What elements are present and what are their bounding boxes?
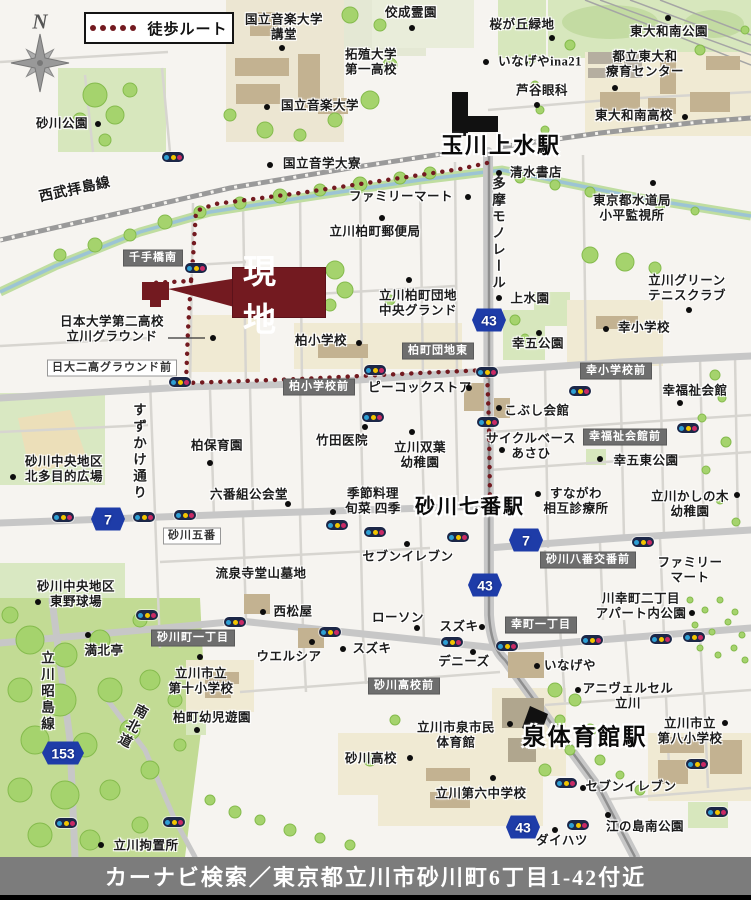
traffic-signal-icon <box>163 817 185 827</box>
poi-dot <box>552 827 558 833</box>
site-callout: 現地 <box>233 268 325 317</box>
traffic-signal-icon <box>136 610 158 620</box>
traffic-signal-icon <box>447 532 469 542</box>
place-label: 砂川高校 <box>345 752 397 767</box>
road-label-nanbokudo: 南北道 <box>112 700 149 751</box>
poi-dot <box>677 400 683 406</box>
legend: 徒歩ルート <box>84 12 234 44</box>
place-label: 立川グリーン テニスクラブ <box>648 273 726 303</box>
poi-dot <box>549 35 555 41</box>
poi-dot <box>207 460 213 466</box>
access-map-flyer: 砂川公園国立音楽大学 講堂佼成霊園拓殖大学 第一高校桜が丘緑地東大和南公園いなげ… <box>0 0 751 900</box>
site-label: 現地 <box>243 245 325 341</box>
place-label: 日本大学第二高校 立川グラウンド <box>60 314 164 344</box>
traffic-signal-icon <box>133 512 155 522</box>
poi-dot <box>496 170 502 176</box>
place-label: いなげやina21 <box>498 55 582 70</box>
place-label: 幸五東公園 <box>613 454 678 469</box>
place-label: アニヴェルセル 立川 <box>583 681 674 711</box>
poi-dot <box>98 842 104 848</box>
station-label-sunagawa-nanaban: 砂川七番駅 <box>415 496 525 520</box>
place-label: 東京都水道局 小平監視所 <box>593 193 671 223</box>
place-label: デニーズ <box>438 655 489 670</box>
place-label: 竹田医院 <box>316 434 368 449</box>
intersection-label: 砂川八番交番前 <box>540 552 636 569</box>
road-label-tama-monorail: 多摩モノレール <box>489 176 505 292</box>
intersection-label: 幸町一丁目 <box>505 617 577 634</box>
poi-dot <box>603 326 609 332</box>
traffic-signal-icon <box>683 632 705 642</box>
poi-dot <box>279 45 285 51</box>
labels-layer: 砂川公園国立音楽大学 講堂佼成霊園拓殖大学 第一高校桜が丘緑地東大和南公園いなげ… <box>0 0 751 857</box>
poi-dot <box>665 15 671 21</box>
place-label: 柏町幼児遊園 <box>173 711 251 726</box>
traffic-signal-icon <box>476 367 498 377</box>
traffic-signal-icon <box>567 820 589 830</box>
traffic-signal-icon <box>326 520 348 530</box>
station-label-izumi-taiikukan: 泉体育館駅 <box>523 723 648 750</box>
place-label: 川幸町二丁目 アパート内公園 <box>596 591 687 621</box>
intersection-label: 千手橋南 <box>123 250 183 267</box>
car-navi-caption-text: カーナビ検索／東京都立川市砂川町6丁目1-42付近 <box>105 860 646 892</box>
place-label: 桜が丘緑地 <box>489 18 554 33</box>
poi-dot <box>507 721 513 727</box>
route-shield-43: 43 <box>506 816 540 839</box>
map-area: 砂川公園国立音楽大学 講堂佼成霊園拓殖大学 第一高校桜が丘緑地東大和南公園いなげ… <box>0 0 751 857</box>
traffic-signal-icon <box>706 807 728 817</box>
place-label: 国立音楽大学 <box>281 99 359 114</box>
place-label: 砂川中央地区 北多目的広場 <box>25 454 103 484</box>
poi-dot <box>414 625 420 631</box>
poi-dot <box>407 755 413 761</box>
place-label: 幸小学校 <box>618 321 670 336</box>
traffic-signal-icon <box>555 778 577 788</box>
poi-dot <box>379 215 385 221</box>
place-label: 佼成霊園 <box>385 6 437 21</box>
poi-dot <box>197 654 203 660</box>
poi-dot <box>734 492 740 498</box>
poi-dot <box>210 335 216 341</box>
place-label: 立川拘置所 <box>113 839 178 854</box>
intersection-label: 砂川高校前 <box>368 678 440 695</box>
place-label: ファミリー マート <box>657 555 722 585</box>
traffic-signal-icon <box>686 759 708 769</box>
intersection-label: 幸小学校前 <box>580 363 652 380</box>
place-label: 流泉寺堂山墓地 <box>215 567 306 582</box>
poi-dot <box>285 501 291 507</box>
traffic-signal-icon <box>162 152 184 162</box>
place-label: 立川第六中学校 <box>435 787 526 802</box>
poi-dot <box>534 663 540 669</box>
intersection-label: 柏町団地東 <box>402 343 474 360</box>
place-label: ピーコックストア <box>368 381 472 396</box>
traffic-signal-icon <box>364 365 386 375</box>
place-label: 西松屋 <box>273 605 312 620</box>
road-label-tachikawa-akishima-line: 立川昭島線 <box>38 651 54 734</box>
traffic-signal-icon <box>650 634 672 644</box>
traffic-signal-icon <box>362 412 384 422</box>
poi-dot <box>496 295 502 301</box>
place-label: 幸福祉会館 <box>662 384 727 399</box>
poi-dot <box>404 541 410 547</box>
poi-dot <box>470 649 476 655</box>
poi-dot <box>309 639 315 645</box>
route-shield-7: 7 <box>509 529 543 552</box>
poi-dot <box>499 447 505 453</box>
place-label: 立川柏町郵便局 <box>329 225 420 240</box>
place-label: スズキ <box>439 620 478 635</box>
road-label-suzukake-dori: すずかけ通り <box>130 403 146 502</box>
place-label: 立川市立 第八小学校 <box>657 716 722 746</box>
intersection-label: 幸福祉会館前 <box>583 429 667 446</box>
poi-dot <box>496 405 502 411</box>
place-label: 立川柏町団地 中央グランド <box>379 288 457 318</box>
intersection-label: 砂川五番 <box>163 528 221 545</box>
place-label: ウエルシア <box>256 650 321 665</box>
place-label: 季節料理 旬菜 四季 <box>345 486 401 516</box>
poi-dot <box>483 59 489 65</box>
poi-dot <box>406 277 412 283</box>
poi-dot <box>686 307 692 313</box>
traffic-signal-icon <box>677 423 699 433</box>
place-label: 清水書店 <box>510 166 562 181</box>
poi-dot <box>682 114 688 120</box>
traffic-signal-icon <box>169 377 191 387</box>
poi-dot <box>490 775 496 781</box>
traffic-signal-icon <box>477 417 499 427</box>
walk-route-dots-icon <box>90 25 136 31</box>
place-label: 国立音学大寮 <box>283 157 361 172</box>
place-label: 幸五公園 <box>512 337 564 352</box>
poi-dot <box>362 424 368 430</box>
traffic-signal-icon <box>569 386 591 396</box>
place-label: 砂川中央地区 東野球場 <box>37 579 115 609</box>
place-label: 都立東大和 療育センター <box>606 49 684 79</box>
poi-dot <box>722 720 728 726</box>
place-label: すながわ 相互診療所 <box>543 486 608 516</box>
place-label: ローソン <box>372 611 424 626</box>
poi-dot <box>85 632 91 638</box>
poi-dot <box>536 330 542 336</box>
legend-label: 徒歩ルート <box>147 18 227 39</box>
intersection-label: 日大二高グラウンド前 <box>47 360 177 377</box>
place-label: 柏保育園 <box>191 439 243 454</box>
route-shield-43: 43 <box>472 309 506 332</box>
place-label: サイクルベース あさひ <box>486 431 576 461</box>
poi-dot <box>267 162 273 168</box>
poi-dot <box>264 104 270 110</box>
place-label: 立川双葉 幼稚園 <box>394 440 446 470</box>
traffic-signal-icon <box>319 627 341 637</box>
poi-dot <box>534 102 540 108</box>
poi-dot <box>580 785 586 791</box>
place-label: ファミリーマート <box>349 190 453 205</box>
place-label: 満北亭 <box>84 644 123 659</box>
poi-dot <box>10 474 16 480</box>
poi-dot <box>605 812 611 818</box>
poi-dot <box>650 180 656 186</box>
station-label-tamagawajosui: 玉川上水駅 <box>441 133 561 159</box>
place-label: 東大和南高校 <box>595 109 673 124</box>
place-label: 砂川公園 <box>36 117 88 132</box>
poi-dot <box>330 509 336 515</box>
poi-dot <box>479 624 485 630</box>
poi-dot <box>575 687 581 693</box>
poi-dot <box>409 25 415 31</box>
route-shield-7: 7 <box>91 508 125 531</box>
poi-dot <box>466 385 472 391</box>
traffic-signal-icon <box>581 635 603 645</box>
poi-dot <box>597 456 603 462</box>
place-label: セブンイレブン <box>362 550 453 565</box>
poi-dot <box>612 85 618 91</box>
intersection-label: 柏小学校前 <box>283 379 355 396</box>
car-navi-caption-bar: カーナビ検索／東京都立川市砂川町6丁目1-42付近 <box>0 857 751 895</box>
poi-dot <box>35 599 41 605</box>
road-label-seibu-haijima-line: 西武拝島線 <box>38 175 112 206</box>
traffic-signal-icon <box>632 537 654 547</box>
traffic-signal-icon <box>496 641 518 651</box>
poi-dot <box>409 429 415 435</box>
place-label: 東大和南公園 <box>630 25 708 40</box>
place-label: 六番組公会堂 <box>210 488 288 503</box>
poi-dot <box>535 491 541 497</box>
traffic-signal-icon <box>224 617 246 627</box>
place-label: こぶし会館 <box>504 404 569 419</box>
traffic-signal-icon <box>364 527 386 537</box>
traffic-signal-icon <box>55 818 77 828</box>
place-label: 江の島南公園 <box>606 820 684 835</box>
place-label: 立川市泉市民 体育館 <box>417 720 495 750</box>
poi-dot <box>356 340 362 346</box>
place-label: 立川かしの木 幼稚園 <box>651 489 729 519</box>
poi-dot <box>95 121 101 127</box>
poi-dot <box>689 610 695 616</box>
poi-dot <box>465 194 471 200</box>
place-label: いなげや <box>544 659 596 674</box>
place-label: ダイハツ <box>536 834 588 849</box>
poi-dot <box>194 727 200 733</box>
traffic-signal-icon <box>185 263 207 273</box>
place-label: 立川市立 第十小学校 <box>168 666 233 696</box>
place-label: 国立音楽大学 講堂 <box>245 12 323 42</box>
place-label: セブンイレブン <box>585 780 676 795</box>
place-label: 上水園 <box>510 292 549 307</box>
place-label: スズキ <box>352 642 391 657</box>
poi-dot <box>260 609 266 615</box>
traffic-signal-icon <box>174 510 196 520</box>
route-shield-153: 153 <box>42 742 84 765</box>
compass-north-label: N <box>32 10 47 35</box>
place-label: 拓殖大学 第一高校 <box>345 47 397 77</box>
route-shield-43: 43 <box>468 574 502 597</box>
place-label: 芦谷眼科 <box>516 84 568 99</box>
intersection-label: 砂川町一丁目 <box>151 630 235 647</box>
traffic-signal-icon <box>441 637 463 647</box>
traffic-signal-icon <box>52 512 74 522</box>
poi-dot <box>340 646 346 652</box>
